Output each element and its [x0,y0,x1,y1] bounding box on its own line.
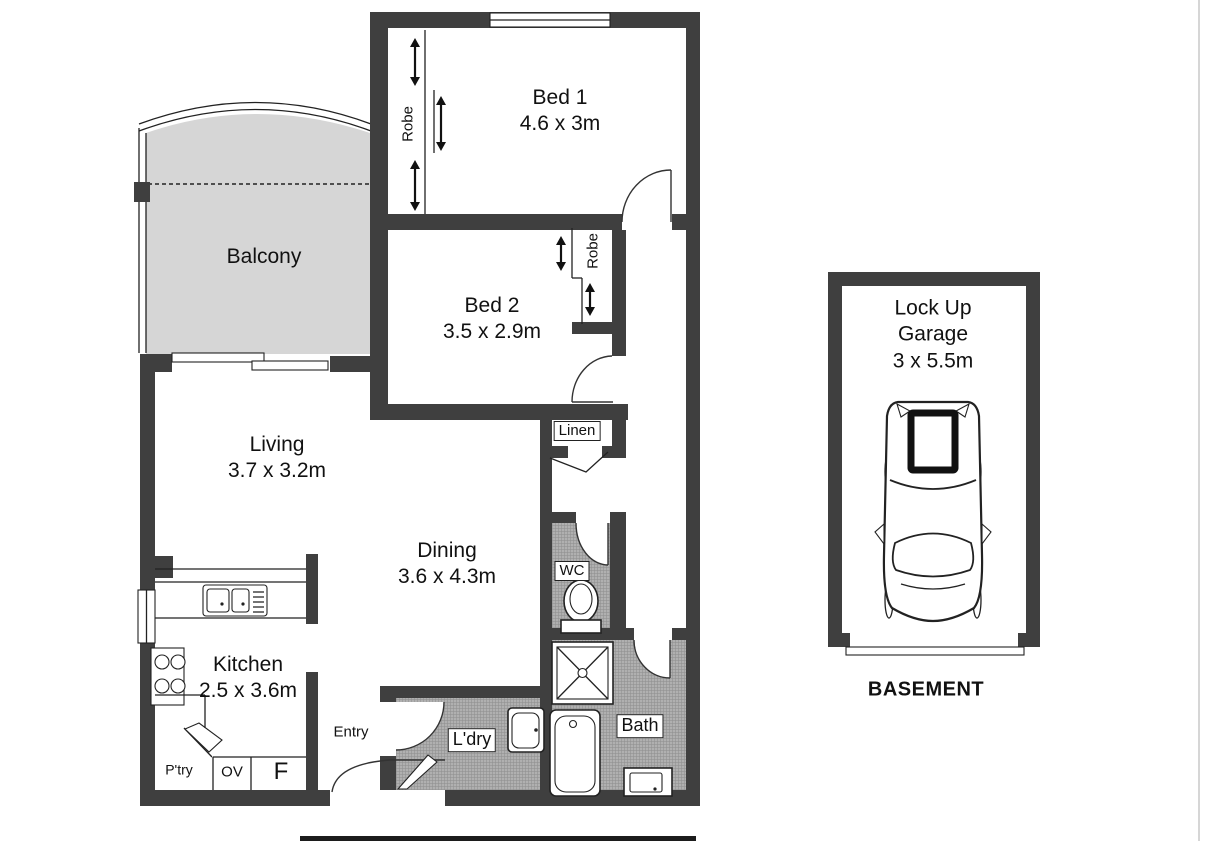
room-label-pantry: P'try [165,761,193,779]
room-label-laundry: L'dry [448,728,496,752]
room-label-balcony: Balcony [227,244,302,270]
floorplan-page: Balcony Bed 1 4.6 x 3m Bed 2 3.5 x 2.9m … [0,0,1205,841]
car-rear-window [893,534,974,577]
garage-door [846,647,1024,655]
room-label-living: Living 3.7 x 3.2m [228,432,326,485]
bed1-door [622,170,671,222]
balcony-area [139,103,371,355]
toilet [561,580,601,633]
bed2-door [572,356,613,402]
page-edge-artifact [1198,0,1200,841]
car [875,402,991,621]
room-label-robe2: Robe [585,233,604,269]
bathtub [550,710,600,796]
shower [552,642,613,704]
room-label-fridge: F [274,757,289,787]
room-label-bath: Bath [616,714,663,738]
vanity [624,768,672,796]
pantry-door [184,723,222,757]
balcony-slider-panel [172,353,264,362]
room-label-bed2: Bed 2 3.5 x 2.9m [443,293,541,346]
kitchen-sink [203,585,267,616]
floorplan-drawing [0,0,1205,841]
car-windshield [911,413,955,470]
room-label-robe1: Robe [400,106,419,142]
room-label-linen: Linen [554,421,601,441]
room-label-oven: OV [221,764,243,783]
cropped-text-artifact [300,836,696,841]
room-label-entry: Entry [333,724,368,743]
room-label-bed1: Bed 1 4.6 x 3m [520,85,601,138]
room-label-dining: Dining 3.6 x 4.3m [398,538,496,591]
room-label-wc: WC [555,561,590,581]
laundry-tub [508,708,544,752]
garage-label: Lock Up Garage 3 x 5.5m [893,296,974,375]
balcony-slider-panel [252,361,328,370]
basement-label: BASEMENT [868,678,984,703]
room-label-kitchen: Kitchen 2.5 x 3.6m [199,652,297,705]
cooktop [151,648,185,705]
